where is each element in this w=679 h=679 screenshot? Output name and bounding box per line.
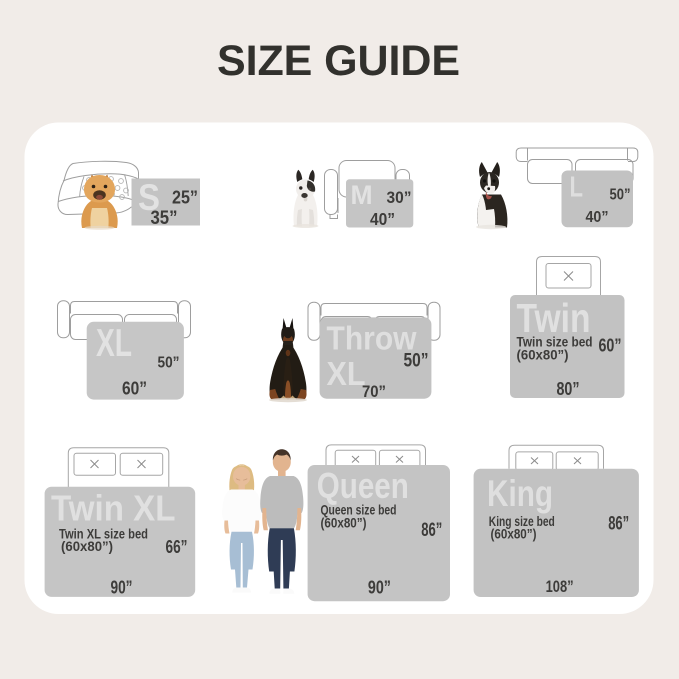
svg-text:Queen: Queen (317, 465, 409, 506)
svg-text:(60x80”): (60x80”) (517, 348, 569, 363)
svg-text:50”: 50” (404, 351, 429, 372)
svg-text:XL: XL (327, 355, 366, 392)
svg-text:Twin XL: Twin XL (51, 488, 176, 529)
svg-text:(60x80”): (60x80”) (61, 539, 113, 554)
svg-text:50”: 50” (610, 187, 631, 204)
svg-text:M: M (351, 180, 373, 210)
svg-text:40”: 40” (586, 209, 609, 226)
svg-text:108”: 108” (546, 577, 574, 596)
svg-text:66”: 66” (166, 537, 188, 557)
svg-text:90”: 90” (368, 578, 391, 598)
svg-text:L: L (570, 172, 584, 204)
svg-text:60”: 60” (599, 336, 622, 356)
svg-text:80”: 80” (557, 379, 580, 399)
svg-text:60”: 60” (122, 379, 147, 399)
svg-text:86”: 86” (608, 514, 629, 535)
svg-text:30”: 30” (387, 188, 412, 207)
svg-text:70”: 70” (362, 383, 386, 401)
svg-text:50”: 50” (158, 355, 180, 372)
svg-text:King: King (487, 472, 553, 514)
svg-text:40”: 40” (370, 209, 395, 229)
svg-text:XL: XL (96, 322, 132, 365)
svg-text:35”: 35” (151, 208, 178, 229)
svg-text:25”: 25” (172, 188, 198, 208)
svg-text:SIZE GUIDE: SIZE GUIDE (217, 37, 460, 85)
svg-text:86”: 86” (421, 520, 442, 541)
svg-text:(60x80”): (60x80”) (321, 516, 367, 531)
svg-text:90”: 90” (111, 578, 133, 598)
svg-text:(60x80”): (60x80”) (491, 527, 537, 542)
